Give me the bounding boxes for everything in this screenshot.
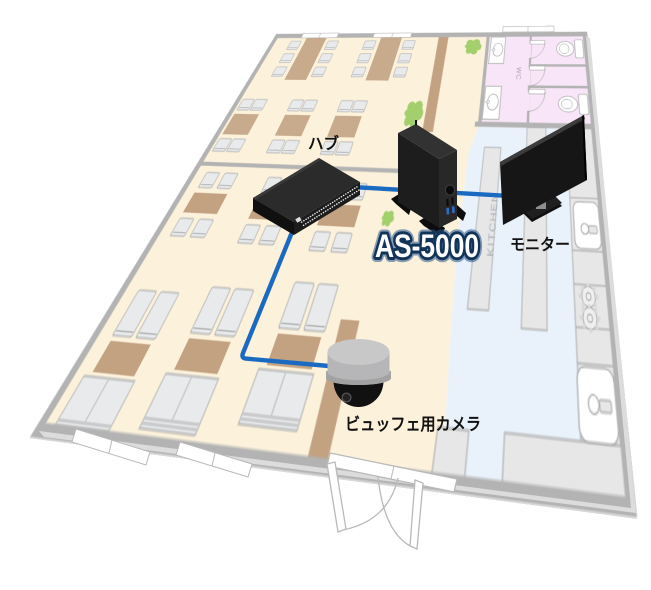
- svg-text:ビュッフェ用カメラ: ビュッフェ用カメラ: [345, 415, 481, 434]
- svg-text:ハブ: ハブ: [308, 134, 339, 153]
- svg-text:AS-5000: AS-5000: [375, 228, 479, 264]
- svg-text:モニター: モニター: [510, 236, 570, 254]
